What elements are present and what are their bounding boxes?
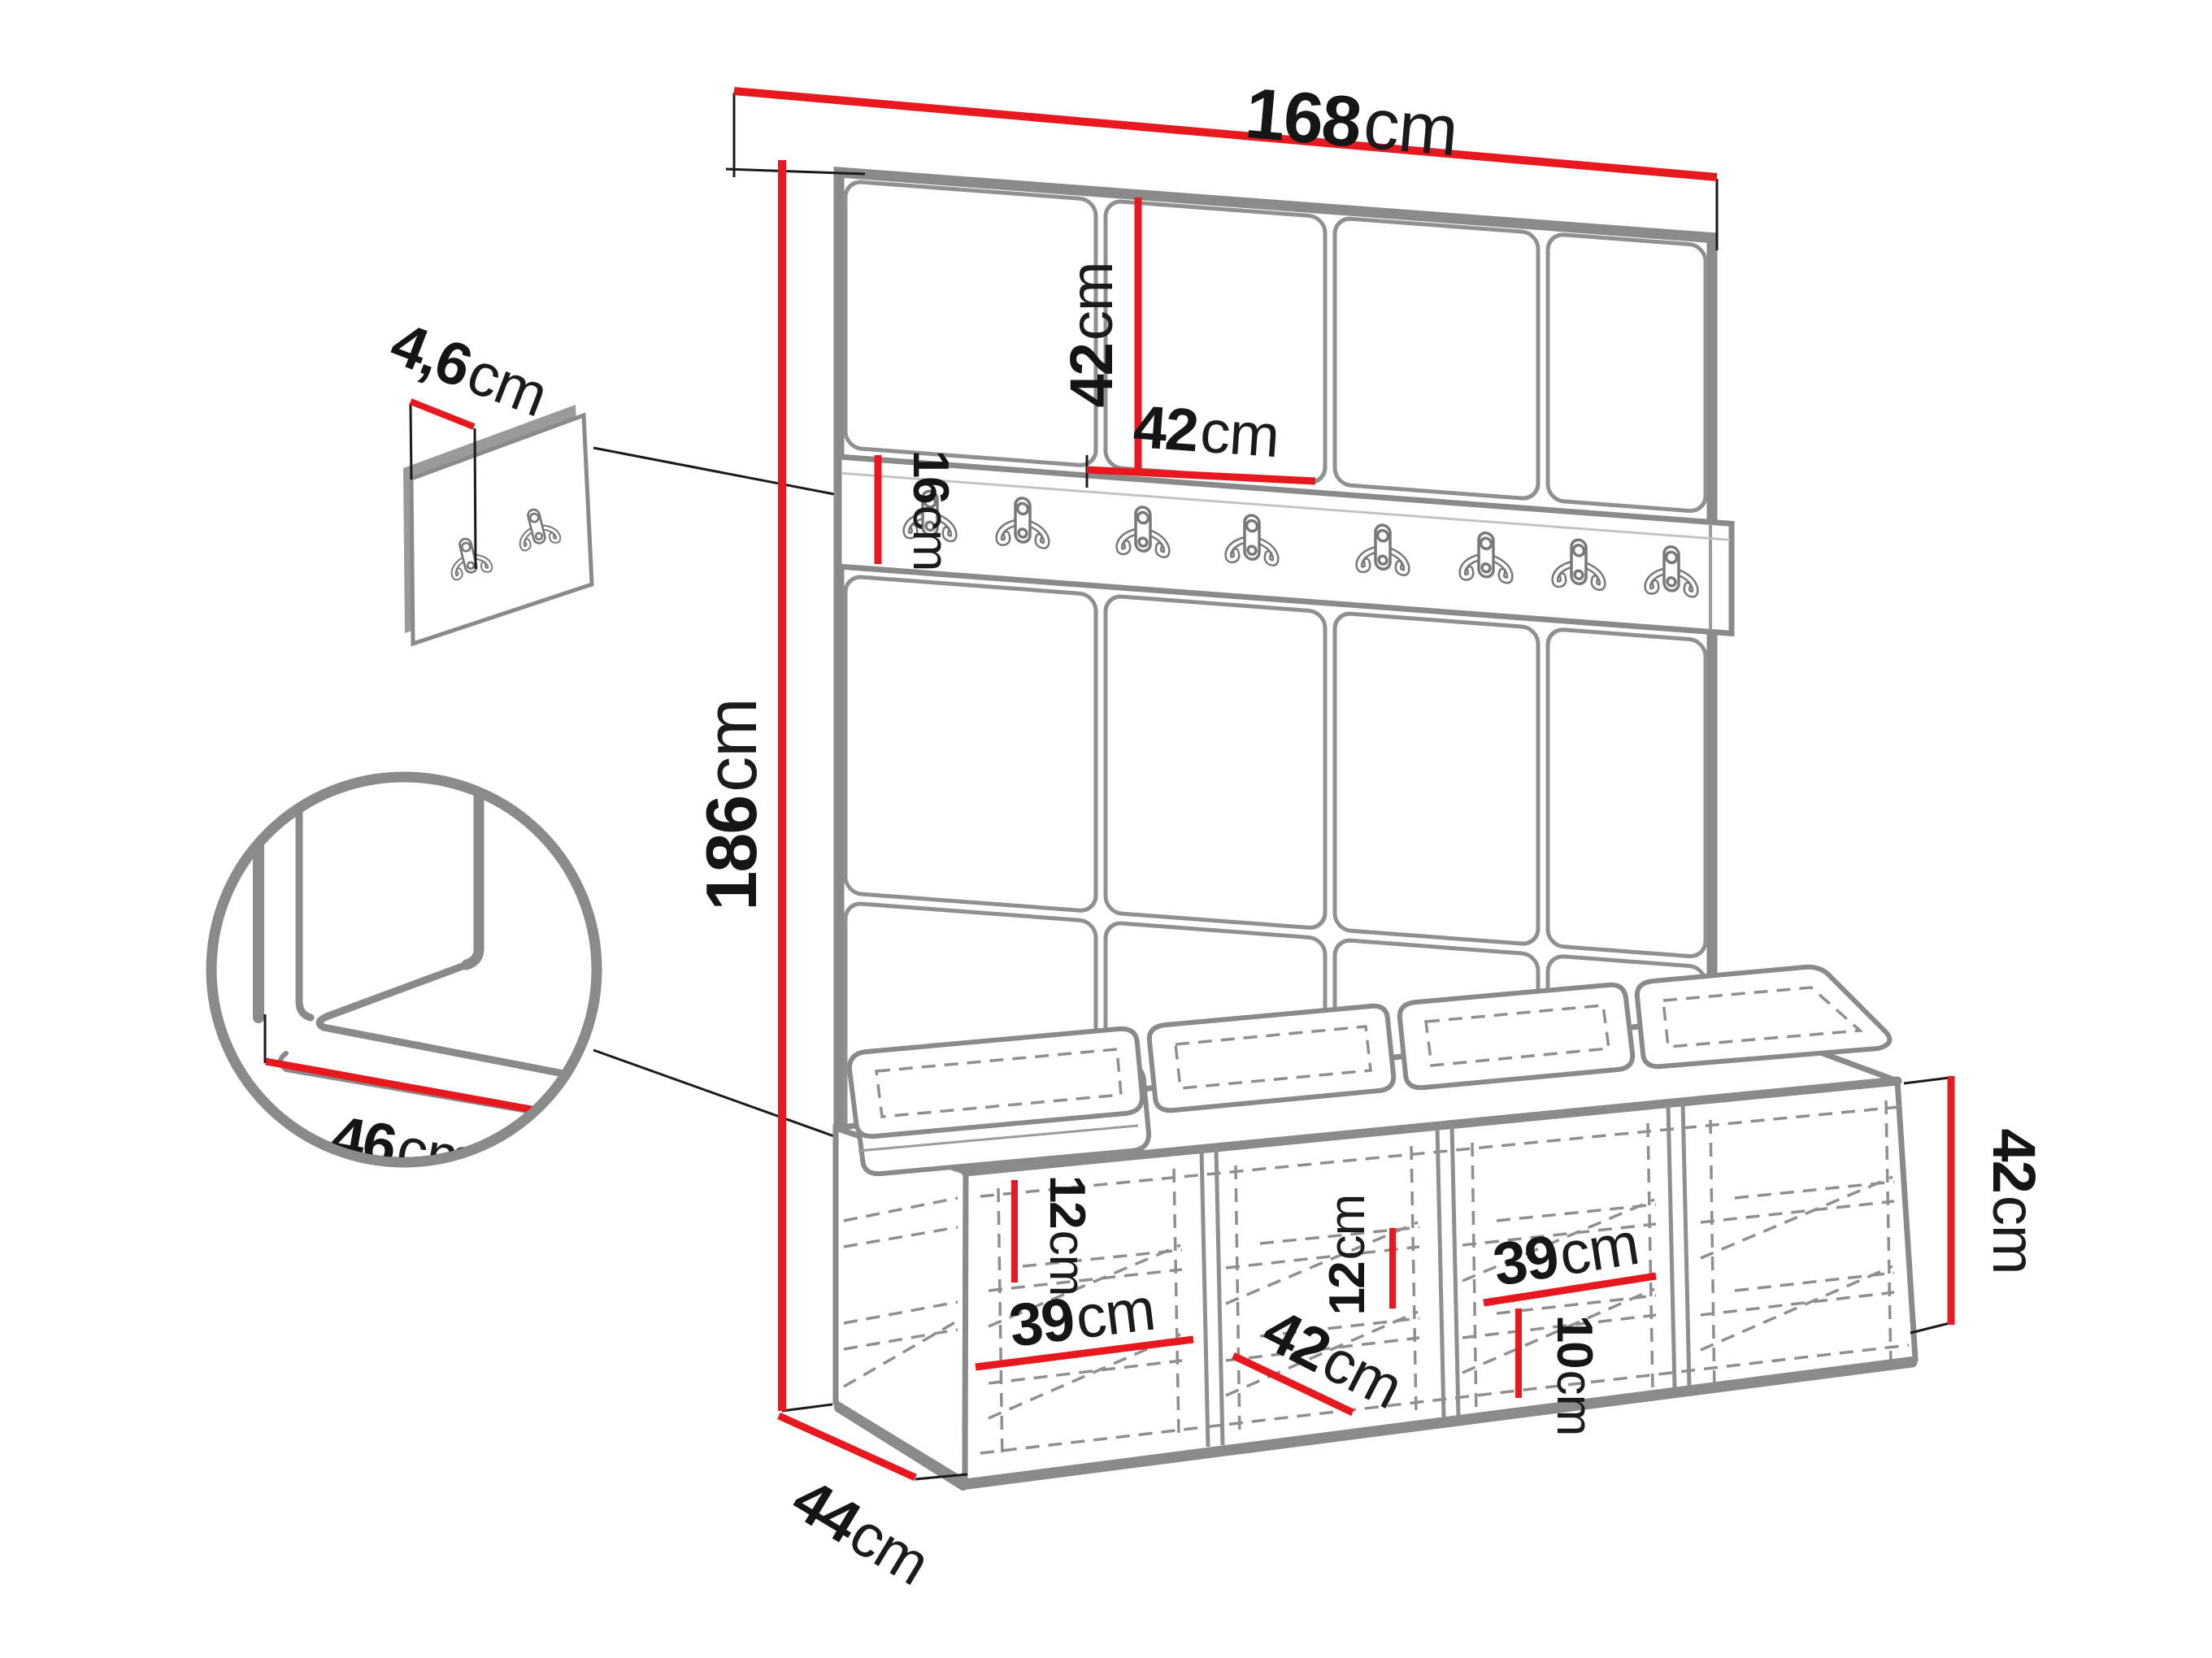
detail-leader-line bbox=[593, 1050, 834, 1136]
thickness-extension-line bbox=[411, 403, 411, 480]
dim-seat-depth-value: 46 bbox=[326, 1102, 401, 1179]
dim-tile-height-label: 42cm bbox=[1058, 263, 1125, 408]
dim-tile-width-unit: cm bbox=[1198, 397, 1281, 471]
dim-middle-shelf-spacing-unit: cm bbox=[1319, 1195, 1375, 1261]
dim-total-width-unit: cm bbox=[1361, 83, 1462, 171]
dim-tile-width-label: 42cm bbox=[1132, 393, 1281, 470]
dim-tile-height-value: 42 bbox=[1058, 344, 1125, 407]
dim-total-width-label: 168cm bbox=[1242, 72, 1461, 171]
dim-total-height-unit: cm bbox=[691, 698, 771, 792]
thickness-extension-line bbox=[475, 428, 476, 569]
dim-rail-height-label: 16cm bbox=[902, 450, 958, 571]
dim-left-shelf-spacing-value: 12 bbox=[1039, 1175, 1095, 1228]
dim-bench-height-value: 42 bbox=[1980, 1129, 2048, 1192]
dim-right-compartment-width-unit: cm bbox=[1554, 1209, 1642, 1288]
dim-left-shelf-spacing-label: 12cm bbox=[1039, 1175, 1095, 1296]
detail-circle bbox=[211, 777, 597, 1162]
dim-left-compartment-width-value: 39 bbox=[1006, 1285, 1077, 1360]
dim-bottom-shelf-spacing-unit: cm bbox=[1546, 1370, 1602, 1436]
diagram-page: 46cm 4,6cm bbox=[0, 0, 2212, 1658]
small-panel-face bbox=[411, 415, 592, 644]
dim-tile-height-unit: cm bbox=[1058, 263, 1125, 341]
dim-right-compartment-width-value: 39 bbox=[1488, 1222, 1562, 1299]
dim-bottom-shelf-spacing-label: 10cm bbox=[1546, 1315, 1602, 1436]
dim-rail-height-value: 16 bbox=[902, 450, 958, 503]
dim-bench-depth-label: 44cm bbox=[781, 1465, 941, 1597]
dim-tile-width-value: 42 bbox=[1132, 393, 1200, 464]
dim-line-total-width bbox=[734, 91, 1717, 177]
dim-total-width-value: 168 bbox=[1242, 72, 1363, 163]
dim-total-height-value: 186 bbox=[691, 796, 771, 911]
dim-total-height-label: 186cm bbox=[691, 698, 771, 910]
furniture-dimension-diagram: 46cm 4,6cm bbox=[0, 0, 2212, 1658]
small-panel-detail: 4,6cm bbox=[382, 309, 876, 644]
dim-bottom-shelf-spacing-value: 10 bbox=[1546, 1315, 1602, 1368]
dim-middle-shelf-spacing-value: 12 bbox=[1319, 1262, 1375, 1315]
seat-cushion bbox=[1400, 985, 1632, 1087]
seat-cushion bbox=[1637, 967, 1890, 1066]
dim-left-compartment-width-unit: cm bbox=[1072, 1275, 1158, 1352]
dim-middle-shelf-spacing-label: 12cm bbox=[1319, 1195, 1375, 1316]
dim-panel-thickness-label: 4,6cm bbox=[382, 309, 556, 429]
dim-rail-height-unit: cm bbox=[902, 506, 958, 571]
seat-cushion bbox=[1149, 1006, 1393, 1110]
dim-bench-height-label: 42cm bbox=[1980, 1129, 2048, 1274]
dim-line-panel-thickness bbox=[411, 401, 474, 427]
dim-bench-height-unit: cm bbox=[1980, 1196, 2048, 1274]
